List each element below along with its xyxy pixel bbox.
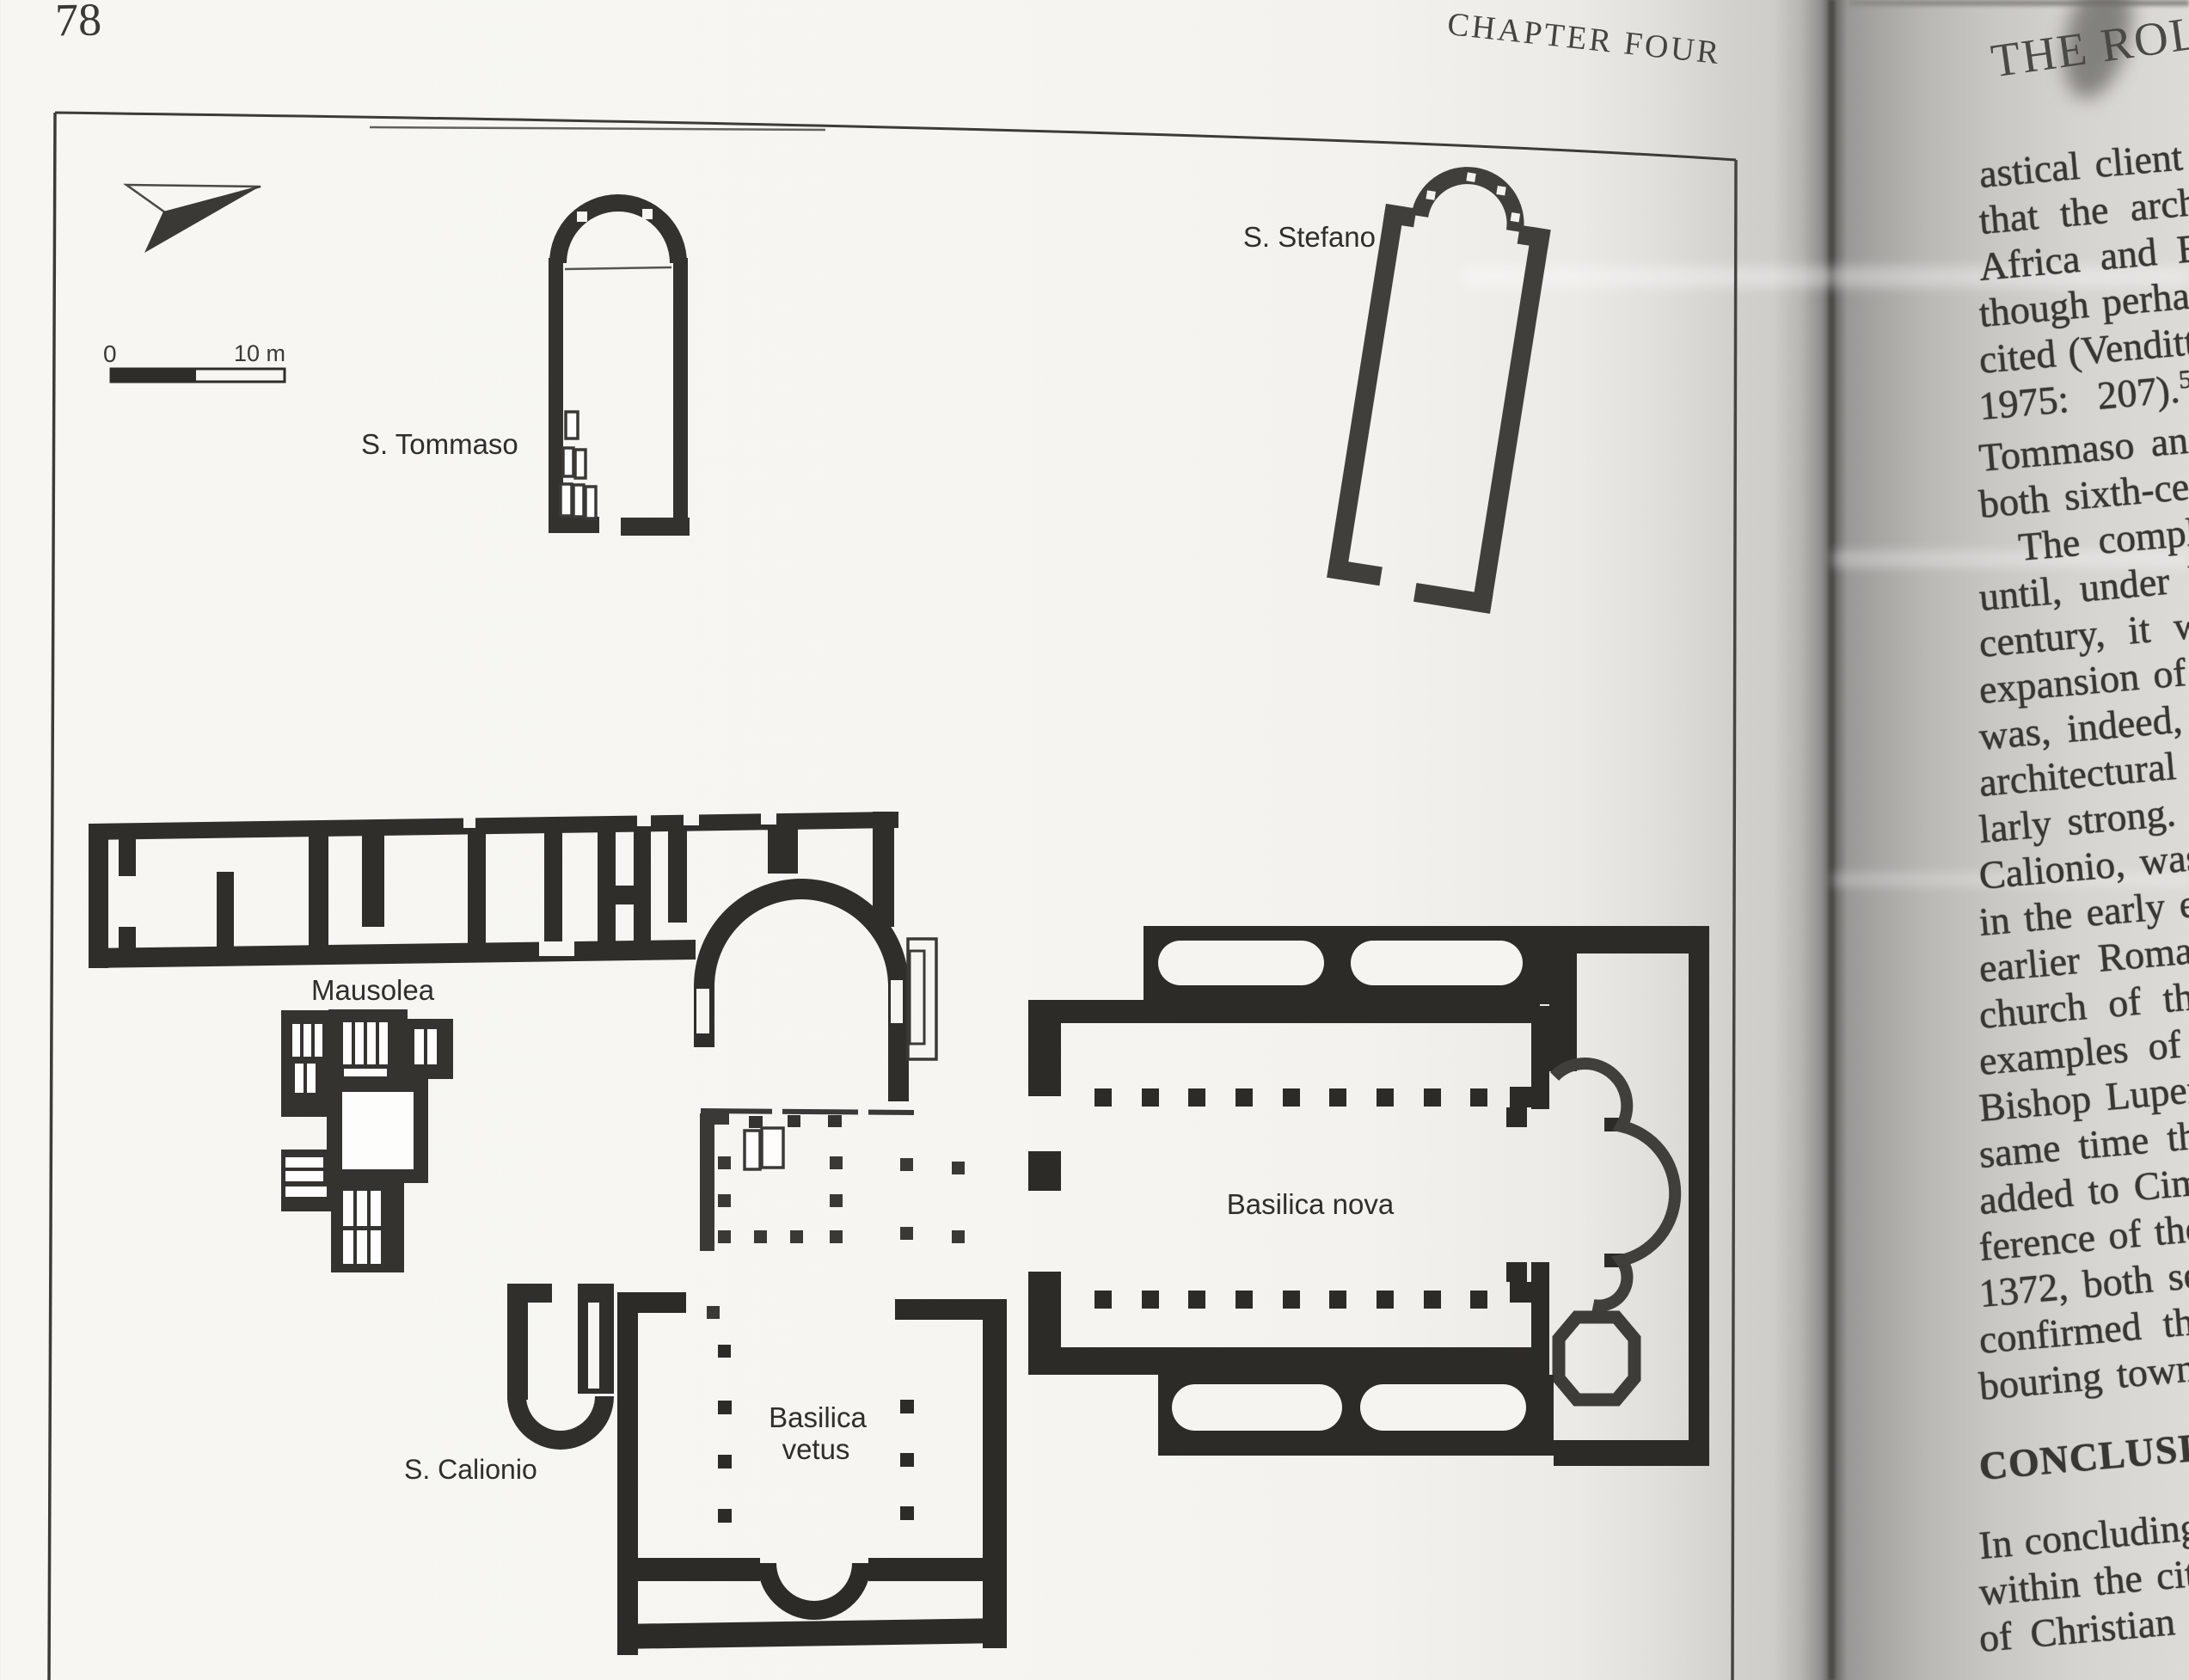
svg-text:Basilica: Basilica [769,1401,867,1433]
svg-text:0: 0 [103,340,117,367]
svg-text:Mausolea: Mausolea [311,974,435,1006]
svg-text:S. Tommaso: S. Tommaso [361,428,518,460]
svg-text:vetus: vetus [782,1433,850,1465]
svg-text:S. Calionio: S. Calionio [404,1454,537,1485]
svg-text:Basilica nova: Basilica nova [1227,1188,1395,1220]
svg-text:S. Stefano: S. Stefano [1243,221,1376,253]
svg-text:10 m: 10 m [234,340,285,366]
